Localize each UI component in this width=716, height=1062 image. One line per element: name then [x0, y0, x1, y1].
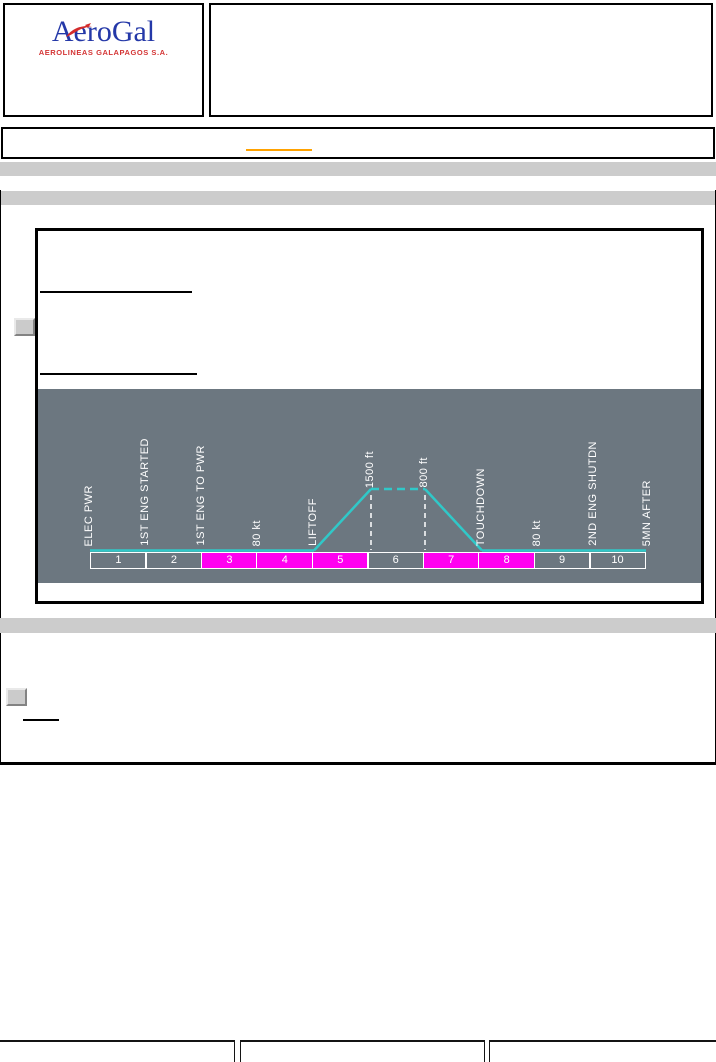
- bird-icon: [65, 14, 95, 44]
- phase-label-touchdown: TOUCHDOWN: [475, 468, 487, 546]
- phase-label-1500ft: 1500 ft: [364, 451, 376, 488]
- phase-label-1st-eng-started: 1ST ENG STARTED: [139, 438, 151, 546]
- phase-segment-6: 6: [367, 552, 424, 569]
- phase-segment-8: 8: [478, 552, 535, 569]
- document-page: AeroGal AEROLINEAS GALAPAGOS S.A. ELEC: [0, 0, 716, 1062]
- blank-underlined-heading: [40, 373, 197, 375]
- phase-label-80kt-landing: 80 kt: [531, 520, 543, 546]
- phase-label-80kt-takeoff: 80 kt: [251, 520, 263, 546]
- logo-title: AeroGal: [52, 17, 155, 47]
- phase-label-5mn-after: 5MN AFTER: [641, 480, 653, 546]
- flight-phase-diagram: ELEC PWR 1ST ENG STARTED 1ST ENG TO PWR …: [38, 389, 701, 583]
- logo-box: AeroGal AEROLINEAS GALAPAGOS S.A.: [3, 3, 204, 117]
- phase-label-800ft: 800 ft: [418, 457, 430, 488]
- phase-segment-7: 7: [423, 552, 480, 569]
- phase-band: 1 2 3 4 5 6 7 8 9 10: [90, 552, 646, 569]
- phase-label-2nd-eng-shutdn: 2ND ENG SHUTDN: [587, 441, 599, 546]
- phase-segment-9: 9: [534, 552, 591, 569]
- gray-square-button[interactable]: [6, 688, 27, 706]
- phase-segment-3: 3: [201, 552, 258, 569]
- phase-segment-4: 4: [256, 552, 313, 569]
- phase-label-1st-eng-to-pwr: 1ST ENG TO PWR: [195, 445, 207, 546]
- redacted-bar: [0, 618, 716, 633]
- footer-table-cell: [0, 1040, 235, 1062]
- phase-segment-10: 10: [589, 552, 646, 569]
- content-box: ELEC PWR 1ST ENG STARTED 1ST ENG TO PWR …: [35, 228, 704, 604]
- footer-table-cell: [489, 1040, 716, 1062]
- phase-segment-2: 2: [145, 552, 202, 569]
- short-blank-underline: [23, 719, 59, 721]
- logo: AeroGal AEROLINEAS GALAPAGOS S.A.: [5, 17, 202, 57]
- gray-square-button[interactable]: [14, 318, 35, 336]
- phase-label-liftoff: LIFTOFF: [307, 498, 319, 546]
- link-row: [1, 127, 715, 159]
- phase-segment-5: 5: [312, 552, 369, 569]
- header-right-box: [209, 3, 713, 117]
- orange-link[interactable]: [246, 129, 312, 151]
- phase-label-elec-pwr: ELEC PWR: [83, 485, 95, 546]
- phase-segment-1: 1: [90, 552, 147, 569]
- redacted-bar: [0, 162, 716, 176]
- blank-underlined-heading: [40, 291, 192, 293]
- footer-table-cell: [240, 1040, 485, 1062]
- logo-subtitle: AEROLINEAS GALAPAGOS S.A.: [5, 48, 202, 57]
